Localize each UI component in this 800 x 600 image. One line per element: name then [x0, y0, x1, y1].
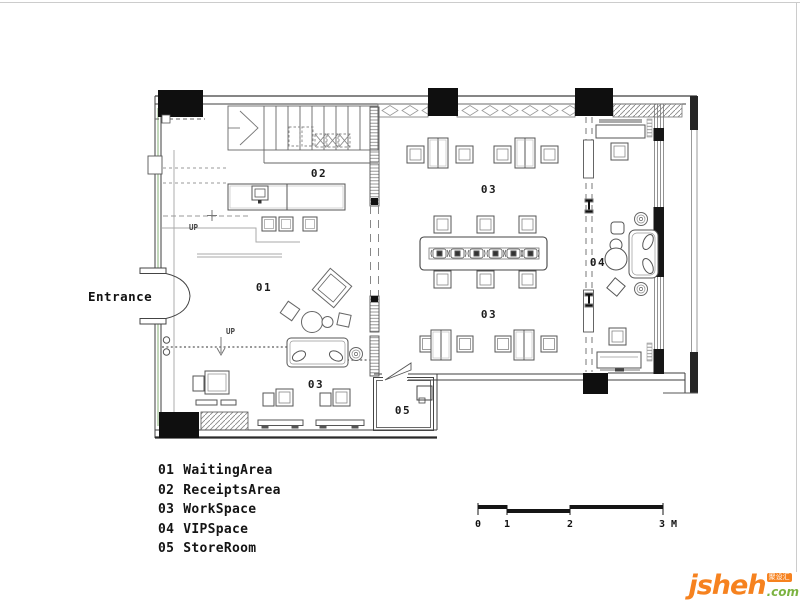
table-chair	[519, 216, 536, 233]
room-label-waiting: 01	[256, 281, 272, 294]
scale-tick-2: 2	[567, 519, 573, 530]
column	[428, 88, 458, 116]
desk-chair	[495, 336, 511, 352]
staircase	[228, 106, 378, 163]
roof-truss-band	[378, 104, 575, 117]
column	[159, 412, 199, 438]
entrance-label: Entrance	[88, 289, 152, 304]
site-logo-text: jsheh	[688, 574, 765, 598]
plant-icon	[350, 348, 363, 361]
chair	[609, 328, 626, 345]
floor-cushion-small	[280, 301, 299, 320]
up-marker-1	[207, 210, 217, 221]
table-chair	[434, 271, 451, 288]
waiting-area	[162, 254, 372, 367]
hatch-band-topright	[613, 104, 682, 117]
hatch-plinth	[201, 412, 248, 430]
wall-fixture	[163, 337, 169, 343]
desk-chair	[456, 146, 473, 163]
legend-item-code: 01	[158, 463, 174, 478]
up-label-1: UP	[189, 223, 199, 232]
wall-box	[148, 156, 162, 174]
site-logo-tld: .com	[767, 587, 799, 598]
room-label-receipts: 02	[311, 167, 327, 180]
legend-item-code: 02	[158, 483, 174, 498]
store-room	[374, 363, 434, 431]
desk-chair	[541, 336, 557, 352]
armchair	[333, 389, 350, 406]
cabinet	[597, 352, 641, 368]
conference-table	[420, 237, 547, 270]
room-label-work-south: 03	[308, 378, 324, 391]
table-chair	[434, 216, 451, 233]
desk-chair	[494, 146, 511, 163]
scale-tick-3: 3 M	[659, 519, 677, 530]
column	[583, 373, 608, 394]
legend-item: 04 VIPSpace	[158, 520, 281, 540]
legend-item-name: VIPSpace	[183, 522, 248, 537]
legend: 01 WaitingArea 02 ReceiptsArea 03 WorkSp…	[158, 461, 281, 559]
wall-fixture	[163, 349, 169, 355]
desk-chair	[541, 146, 558, 163]
site-logo-badge: 聚设汇	[767, 573, 792, 582]
desk	[431, 330, 451, 360]
legend-item: 03 WorkSpace	[158, 500, 281, 520]
pouf	[611, 222, 624, 234]
desk-chair	[457, 336, 473, 352]
table-chair	[477, 216, 494, 233]
workspace-desks	[407, 138, 558, 360]
round-stool	[322, 317, 333, 328]
site-logo-right: 聚设汇 .com	[767, 573, 799, 598]
room-label-work-lower: 03	[481, 308, 497, 321]
legend-item-name: StoreRoom	[183, 541, 256, 556]
room-label-vip: 04	[590, 256, 606, 269]
legend-item: 02 ReceiptsArea	[158, 481, 281, 501]
plant-icon	[635, 213, 648, 226]
floor-cushion-large	[312, 268, 351, 307]
plant-icon	[635, 283, 648, 296]
legend-item: 05 StoreRoom	[158, 539, 281, 559]
stair-direction-arrow	[240, 111, 258, 145]
vip-area	[596, 119, 658, 372]
desk	[515, 138, 535, 168]
desk	[428, 138, 448, 168]
cabinet	[596, 125, 645, 138]
round-table	[302, 312, 323, 333]
table-chair	[477, 271, 494, 288]
room-label-work-upper: 03	[481, 183, 497, 196]
armchair	[276, 389, 293, 406]
storage-x-boxes	[315, 134, 350, 147]
round-table	[605, 248, 627, 270]
bench	[316, 420, 364, 428]
scale-tick-1: 1	[504, 519, 510, 530]
legend-item-code: 05	[158, 541, 174, 556]
page: 01 02 03 03 03 04 05 Entrance UP UP 0 1 …	[0, 0, 800, 600]
room-label-store: 05	[395, 404, 411, 417]
wall-box-small	[162, 115, 170, 123]
floor-plan: 01 02 03 03 03 04 05 Entrance UP UP 0 1 …	[0, 0, 800, 600]
scale-tick-0: 0	[475, 519, 481, 530]
facade-line	[663, 96, 698, 393]
armchair	[205, 371, 229, 394]
legend-item-code: 03	[158, 502, 174, 517]
legend-item-name: ReceiptsArea	[183, 483, 281, 498]
legend-item-code: 04	[158, 522, 174, 537]
chair	[611, 143, 628, 160]
bench	[258, 420, 303, 428]
vip-sofa	[629, 230, 658, 278]
floor-cushion	[607, 278, 625, 296]
legend-item-name: WorkSpace	[183, 502, 256, 517]
desk	[514, 330, 534, 360]
legend-item: 01 WaitingArea	[158, 461, 281, 481]
desk-chair	[407, 146, 424, 163]
legend-item-name: WaitingArea	[183, 463, 272, 478]
column	[575, 88, 613, 116]
partition-vip	[584, 117, 594, 372]
side-table	[337, 313, 351, 327]
table-chair	[519, 271, 536, 288]
column	[158, 90, 203, 117]
up-label-2: UP	[226, 327, 236, 336]
site-logo[interactable]: jsheh 聚设汇 .com	[688, 573, 799, 598]
scale-bar: 0 1 2 3 M	[475, 503, 677, 530]
sofa	[287, 338, 348, 367]
